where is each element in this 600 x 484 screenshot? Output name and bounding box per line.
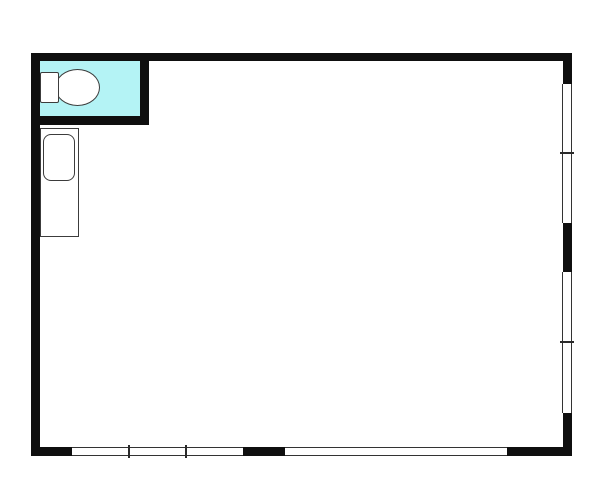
wall-bottom-left (31, 447, 72, 456)
window-bottom-right (285, 447, 507, 456)
toilet-bowl (55, 69, 100, 106)
wall-bottom-right (507, 447, 572, 456)
wall-top (31, 53, 572, 61)
wall-right-middle (563, 223, 572, 272)
toilet-room-wall-right (140, 53, 149, 125)
wall-bottom-middle (243, 447, 285, 456)
floorplan-canvas (0, 0, 600, 484)
sink-basin (43, 134, 75, 181)
window-right-upper-mullion-1 (560, 152, 574, 154)
window-right-lower-mullion-1 (560, 341, 574, 343)
toilet-tank (40, 72, 59, 103)
window-bottom-left-mullion-1 (128, 445, 130, 458)
window-right-upper (562, 84, 572, 223)
wall-right-upper (563, 53, 572, 84)
window-right-lower (562, 272, 572, 413)
wall-left (31, 53, 40, 456)
window-bottom-left (72, 447, 243, 456)
toilet-room-wall-bottom (31, 116, 149, 125)
window-bottom-left-mullion-2 (185, 445, 187, 458)
